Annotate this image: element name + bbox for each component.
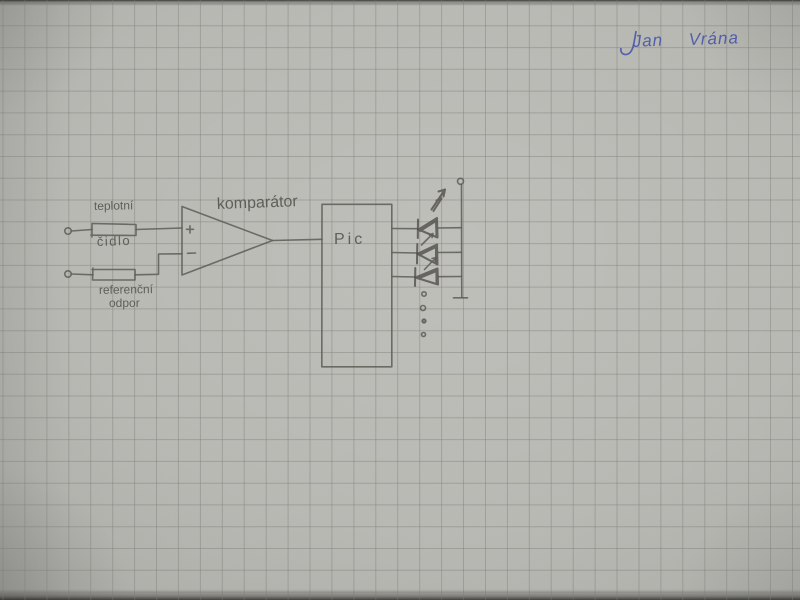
svg-text:čidlo: čidlo [97,233,132,249]
svg-text:Vrána: Vrána [688,28,739,49]
svg-text:referenční: referenční [99,282,154,297]
svg-text:teplotní: teplotní [94,198,134,213]
svg-text:Pic: Pic [334,231,365,248]
svg-text:komparátor: komparátor [217,193,299,213]
svg-text:odpor: odpor [109,296,140,310]
